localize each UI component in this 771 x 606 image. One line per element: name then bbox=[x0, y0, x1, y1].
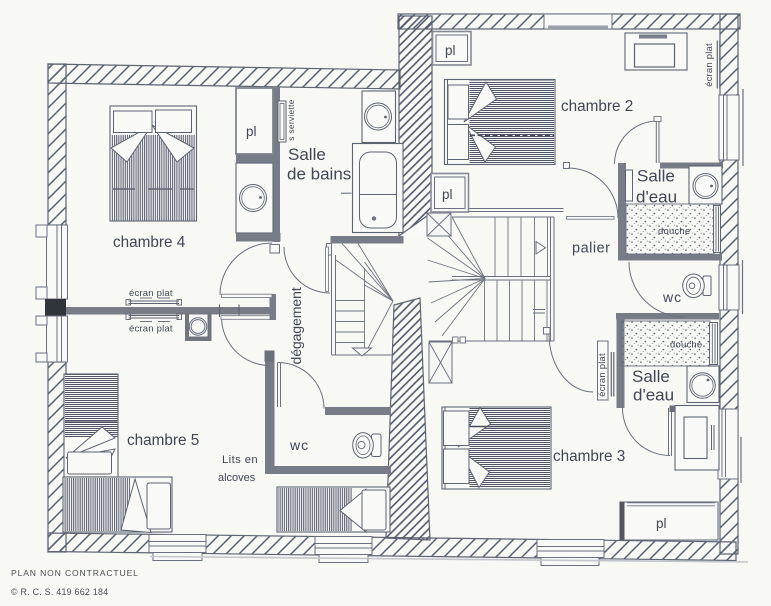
svg-text:de bains: de bains bbox=[287, 165, 351, 184]
svg-text:s serviette: s serviette bbox=[286, 99, 296, 141]
svg-text:d'eau: d'eau bbox=[636, 188, 677, 207]
svg-text:douche: douche bbox=[658, 226, 690, 237]
svg-text:wc: wc bbox=[289, 437, 309, 453]
svg-text:chambre 4: chambre 4 bbox=[113, 234, 186, 251]
svg-text:pl: pl bbox=[246, 124, 257, 139]
svg-text:© R. C. S. 419 662 184: © R. C. S. 419 662 184 bbox=[11, 587, 108, 597]
svg-text:palier: palier bbox=[572, 241, 610, 257]
svg-text:Salle: Salle bbox=[288, 145, 326, 164]
svg-text:écran plat: écran plat bbox=[597, 353, 608, 397]
svg-text:pl: pl bbox=[442, 187, 453, 202]
svg-text:douche: douche bbox=[670, 340, 702, 351]
svg-text:PLAN NON CONTRACTUEL: PLAN NON CONTRACTUEL bbox=[11, 568, 139, 578]
svg-text:Salle: Salle bbox=[637, 167, 675, 186]
svg-text:chambre 5: chambre 5 bbox=[127, 432, 199, 449]
svg-text:alcoves: alcoves bbox=[218, 472, 256, 484]
svg-text:chambre 2: chambre 2 bbox=[561, 98, 633, 115]
svg-text:pl: pl bbox=[656, 516, 667, 531]
svg-text:dégagement: dégagement bbox=[289, 287, 305, 364]
svg-text:écran plat: écran plat bbox=[129, 324, 173, 335]
svg-text:écran plat: écran plat bbox=[704, 43, 715, 87]
svg-text:Salle: Salle bbox=[632, 367, 670, 386]
svg-text:écran plat: écran plat bbox=[129, 288, 173, 299]
svg-text:Lits en: Lits en bbox=[222, 454, 258, 466]
svg-text:d'eau: d'eau bbox=[633, 386, 674, 405]
svg-text:wc: wc bbox=[662, 289, 682, 305]
svg-text:pl: pl bbox=[445, 43, 456, 58]
svg-text:chambre 3: chambre 3 bbox=[553, 448, 625, 465]
